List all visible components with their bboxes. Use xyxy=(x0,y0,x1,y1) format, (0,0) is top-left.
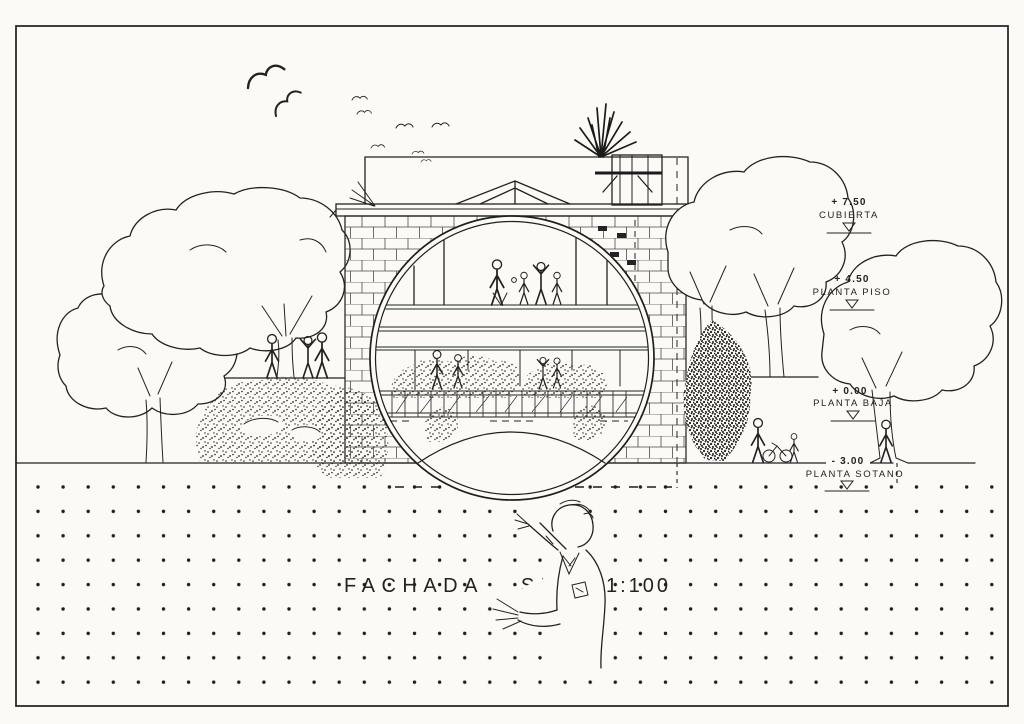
facade-drawing: + 7.50 CUBIERTA + 4.50 PLANTA PISO + 0.0… xyxy=(0,0,1024,724)
level-value: + 0.00 xyxy=(832,386,867,397)
level-label: PLANTA PISO xyxy=(813,287,892,298)
level-label: PLANTA SOTANO xyxy=(806,469,905,480)
drawing-scale: 1:100 xyxy=(606,575,671,597)
level-label: CUBIERTA xyxy=(819,210,879,221)
level-label: PLANTA BAJA xyxy=(813,398,893,409)
level-value: + 4.50 xyxy=(834,274,869,285)
level-value: + 7.50 xyxy=(831,197,866,208)
title-block: FACHADA SUR 1:100 xyxy=(344,575,671,597)
level-value: - 3.00 xyxy=(832,456,865,467)
drawing-sheet: + 7.50 CUBIERTA + 4.50 PLANTA PISO + 0.0… xyxy=(0,0,1024,724)
